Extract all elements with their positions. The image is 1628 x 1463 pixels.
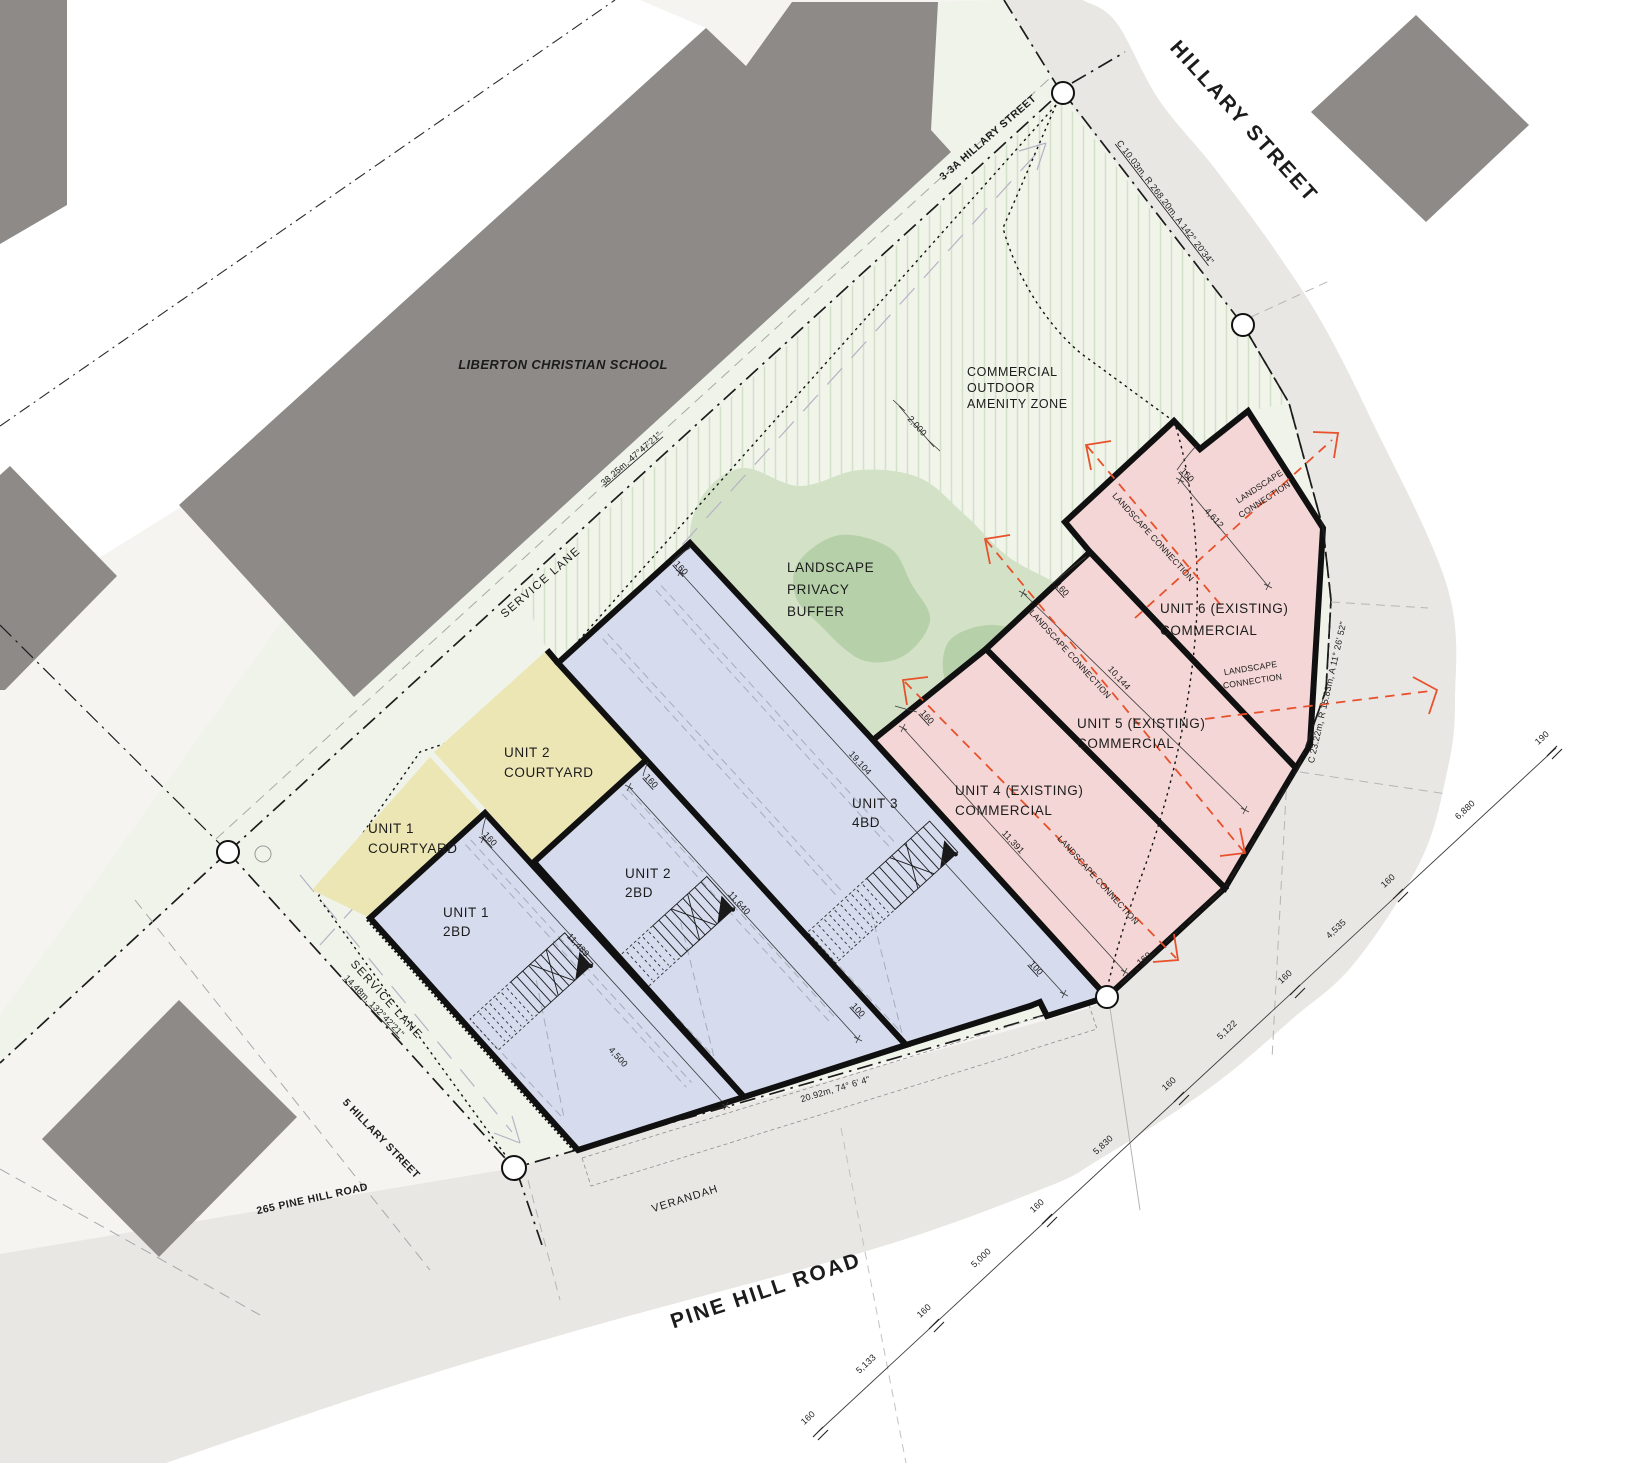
svg-text:COMMERCIAL: COMMERCIAL [967, 365, 1058, 379]
svg-text:COURTYARD: COURTYARD [368, 841, 458, 856]
svg-text:UNIT 6 (EXISTING): UNIT 6 (EXISTING) [1160, 601, 1288, 616]
svg-text:2BD: 2BD [625, 885, 653, 900]
svg-text:PRIVACY: PRIVACY [787, 582, 849, 597]
svg-text:UNIT 1: UNIT 1 [368, 821, 414, 836]
svg-text:UNIT 4 (EXISTING): UNIT 4 (EXISTING) [955, 783, 1083, 798]
svg-text:LIBERTON CHRISTIAN SCHOOL: LIBERTON CHRISTIAN SCHOOL [458, 357, 668, 372]
svg-text:OUTDOOR: OUTDOOR [967, 381, 1035, 395]
svg-text:AMENITY ZONE: AMENITY ZONE [967, 397, 1068, 411]
svg-text:COMMERCIAL: COMMERCIAL [1160, 623, 1258, 638]
svg-text:COMMERCIAL: COMMERCIAL [955, 803, 1053, 818]
svg-text:UNIT 2: UNIT 2 [625, 866, 671, 881]
svg-text:UNIT 1: UNIT 1 [443, 905, 489, 920]
svg-text:BUFFER: BUFFER [787, 604, 845, 619]
svg-text:LANDSCAPE: LANDSCAPE [787, 560, 874, 575]
svg-text:UNIT 5 (EXISTING): UNIT 5 (EXISTING) [1077, 716, 1205, 731]
svg-text:2BD: 2BD [443, 924, 471, 939]
svg-text:4BD: 4BD [852, 815, 880, 830]
svg-text:UNIT 3: UNIT 3 [852, 796, 898, 811]
svg-text:COMMERCIAL: COMMERCIAL [1077, 736, 1175, 751]
svg-text:COURTYARD: COURTYARD [504, 765, 594, 780]
svg-text:UNIT 2: UNIT 2 [504, 745, 550, 760]
